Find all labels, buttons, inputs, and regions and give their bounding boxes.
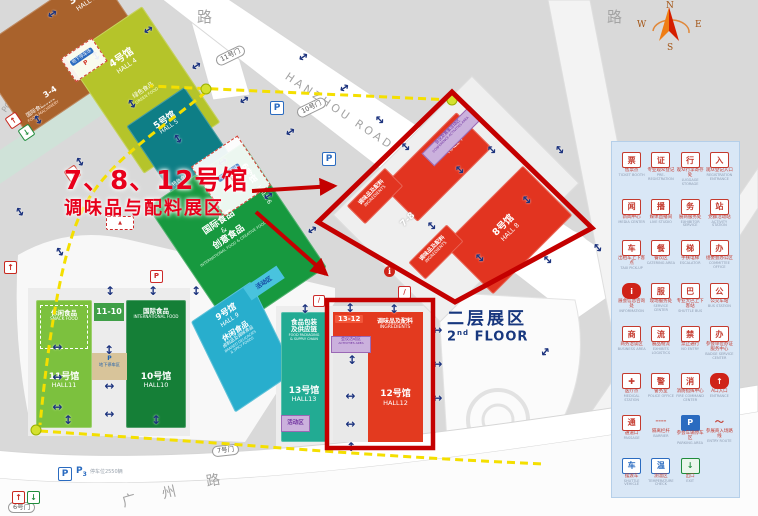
second-floor-en: 2nd FLOOR xyxy=(447,329,528,345)
escalator-point-icon-2: / xyxy=(313,295,325,307)
station-icon: 站 xyxy=(710,199,729,215)
hall12-name: 12号馆 xyxy=(368,386,423,399)
legend-label-en: MEDIA CENTER xyxy=(618,221,645,225)
hall-11: 休闲食品 SNACK FOOD 11号馆 HALL11 xyxy=(36,300,92,428)
service-center-icon: 服 xyxy=(651,283,670,299)
activity-zone-13-label: 活动区 xyxy=(287,420,304,426)
parking-capacity-note: 停车位2550辆 xyxy=(90,469,123,475)
direction-arrow-icon: ↕ xyxy=(63,414,73,426)
legend-label-en: TICKET BOOTH xyxy=(619,174,645,178)
logistics-truck-icon: 流 xyxy=(651,326,670,342)
legend-label-en: COMMITTEE OFFICE xyxy=(705,262,734,269)
hall12-en: HALL12 xyxy=(368,399,423,407)
connector-11-10: 11-10 xyxy=(94,303,124,321)
legend-label-en: POLICE OFFICE xyxy=(648,395,674,399)
legend-item: ～参展商入场路线ENTRY ROUTE xyxy=(705,415,734,446)
fire-command-icon: 消 xyxy=(681,373,700,389)
legend-label-en: INFORMATION xyxy=(619,310,644,314)
legend-item: 播媒体直播间LIVE STUDIO xyxy=(646,199,675,228)
legend-item: 入观众登记入口REGISTRATION ENTRANCE xyxy=(705,152,734,186)
service-hand-icon: 务 xyxy=(681,199,700,215)
legend-label-en: TEMPERATURE CHECK xyxy=(646,480,675,487)
direction-arrow-icon: ↕ xyxy=(105,285,115,297)
hall10-sub-en: INTERNATIONAL FOOD xyxy=(126,315,186,320)
exhibition-floor-map: { "annotation": {"line1": "7、8、12号馆", "l… xyxy=(0,0,758,516)
legend-label-en: NO ENTRY xyxy=(681,348,699,352)
annotation-line1: 7、8、12号馆 xyxy=(64,167,248,196)
route-swoosh-icon: ～ xyxy=(711,415,728,429)
second-floor-cn: 二层展区 xyxy=(447,309,528,329)
legend-item: 梯手扶电梯ESCALATOR xyxy=(676,240,705,271)
underground-parking-zone: P 地下停车区 xyxy=(92,353,127,380)
temperature-icon: 温 xyxy=(651,458,670,474)
legend-item: ↓出口EXIT xyxy=(676,458,705,487)
legend-label-en: BADGE SERVICE CENTER xyxy=(705,353,734,360)
entrance-registration-icon: 入 xyxy=(710,152,729,168)
direction-arrow-icon: ↕ xyxy=(344,419,356,429)
parking-p-icon: P xyxy=(322,152,336,166)
hall13-sub-en2: & SUPPLY CHAIN xyxy=(281,338,327,342)
underground-parking-tag: 地下停车场 xyxy=(69,47,94,67)
direction-arrow-icon: ↕ xyxy=(103,409,115,419)
no-entry-icon: 禁 xyxy=(681,326,700,342)
legend-item: 商商务洽谈区BUSINESS AREA xyxy=(617,326,646,360)
legend-label-en: EXHIBITOR SERVICE xyxy=(676,221,705,228)
second-floor-label: 二层展区 2nd FLOOR xyxy=(447,309,528,345)
direction-arrow-icon: ↕ xyxy=(431,393,443,403)
legend-label-en: LIVE STUDIO xyxy=(650,221,672,225)
legend-item: ╌╌隔离栏杆BARRIER xyxy=(646,415,675,446)
legend-label-en: SHUTTLE BUS xyxy=(678,310,702,314)
parking-p-icon: P xyxy=(58,467,72,481)
office-icon: 办 xyxy=(710,240,729,256)
direction-arrow-icon: ↕ xyxy=(191,285,201,297)
legend-item: 温测温区TEMPERATURE CHECK xyxy=(646,458,675,487)
legend-item: 票售票点TICKET BOOTH xyxy=(617,152,646,186)
shuttle-bus-icon: 巴 xyxy=(681,283,700,299)
direction-arrow-icon: ↕ xyxy=(104,344,114,356)
catering-icon: 餐 xyxy=(651,240,670,256)
direction-arrow-icon: ↕ xyxy=(389,303,399,315)
legend-label-en: EXIT xyxy=(686,480,694,484)
business-icon: 商 xyxy=(622,326,641,342)
legend-item: 证专业观众登记PRE-REGISTRATION xyxy=(646,152,675,186)
legend-label-en: PASSAGE xyxy=(624,437,640,441)
legend-label-en: FIRE COMMAND CENTER xyxy=(676,395,705,402)
legend-item: ✚医疗点MEDICAL STATION xyxy=(617,373,646,402)
compass: N W E S xyxy=(633,1,705,55)
info-point-icon: i xyxy=(384,266,395,277)
entrance-icon: ↑ xyxy=(12,491,25,504)
escalator-point-icon: / xyxy=(398,286,411,299)
direction-arrow-icon: ↕ xyxy=(148,285,158,297)
entrance-icon: ↑ xyxy=(4,261,17,274)
direction-arrow-icon: ↕ xyxy=(300,303,310,315)
legend-item: 车摆渡车SHUTTLE VEHICLE xyxy=(617,458,646,487)
legend-item: 车出租车上下客点TAXI PICK-UP xyxy=(617,240,646,271)
exit-icon: ↓ xyxy=(27,491,40,504)
legend-item: 通通道口PASSAGE xyxy=(617,415,646,446)
legend-item: 公公交车站BUS STATION xyxy=(705,283,734,314)
parking-point-icon: P xyxy=(150,270,163,283)
parking-p-mark: P xyxy=(82,59,90,67)
legend-label-en: BUSINESS AREA xyxy=(618,348,646,352)
legend-label-en: EXHIBITS LOGISTICS xyxy=(646,348,675,355)
legend-item: 服现场服务处SERVICE CENTER xyxy=(646,283,675,314)
legend-label-en: SHUTTLE VEHICLE xyxy=(617,480,646,487)
road-char-topright: 路 xyxy=(607,6,622,27)
legend-label-en: ENTRY ROUTE xyxy=(707,440,732,444)
passage-icon: 通 xyxy=(622,415,641,431)
hall11-sub-en: SNACK FOOD xyxy=(36,317,92,322)
shuttle-vehicle-icon: 车 xyxy=(622,458,641,474)
luggage-icon: 行 xyxy=(681,152,700,168)
direction-arrow-icon: ↕ xyxy=(345,302,355,314)
legend-item: 闻新闻中心MEDIA CENTER xyxy=(617,199,646,228)
barrier-icon: ╌╌ xyxy=(652,415,669,429)
camera-icon: 播 xyxy=(651,199,670,215)
hall10-en: HALL10 xyxy=(126,382,186,389)
legend-item: 流展品物流EXHIBITS LOGISTICS xyxy=(646,326,675,360)
legend-item: ↑A口入口ENTRANCE xyxy=(705,373,734,402)
legend-label-en: PRE-REGISTRATION xyxy=(646,174,675,181)
annotation-line2: 调味品与配料展区 xyxy=(64,199,248,219)
entrance-a-icon: ↑ xyxy=(710,373,729,389)
badge-service-icon: 办 xyxy=(710,326,729,342)
meeting-zone-en: ACTIVITIES AREA xyxy=(332,342,370,345)
legend-item: i展会信息咨询处INFORMATION xyxy=(617,283,646,314)
direction-arrow-icon: ↕ xyxy=(344,391,356,401)
legend-label-en: PARKING AREA xyxy=(677,442,703,446)
legend-label-en: BUS STATION xyxy=(708,305,731,309)
legend-label-en: LUGGAGE STORAGE xyxy=(676,179,705,186)
legend-label-en: TAXI PICK-UP xyxy=(620,267,642,271)
ticket-icon: 票 xyxy=(622,152,641,168)
connector-11-10-label: 11-10 xyxy=(96,307,122,316)
connector-13-12: 13-12 xyxy=(335,315,363,323)
direction-arrow-icon: ↕ xyxy=(51,342,63,352)
meeting-activity-zone: 会议活动区 ACTIVITIES AREA xyxy=(331,336,371,353)
direction-arrow-icon: ↕ xyxy=(51,372,63,382)
legend-label-en: MEDICAL STATION xyxy=(617,395,646,402)
legend-item: 站党群活动站ACTIVITY STATION xyxy=(705,199,734,228)
highlight-annotation: 7、8、12号馆 调味品与配料展区 xyxy=(64,167,248,218)
hall12-sub: 调味品及配料 xyxy=(369,316,421,325)
legend-item: 办组委会办公区COMMITTEE OFFICE xyxy=(705,240,734,271)
direction-arrow-icon: ↕ xyxy=(346,441,356,453)
legend-label-en: BARRIER xyxy=(653,435,668,439)
legend-item: 餐餐饮区CATERING AREA xyxy=(646,240,675,271)
legend-item: P参会车辆停车区PARKING AREA xyxy=(676,415,705,446)
legend-label-en: ESCALATOR xyxy=(680,262,701,266)
legend-label-en: REGISTRATION ENTRANCE xyxy=(705,174,734,181)
hall-10: 国际食品 INTERNATIONAL FOOD 10号馆 HALL10 xyxy=(126,300,186,428)
direction-arrow-icon: ↕ xyxy=(431,359,443,369)
underground-parking2-label: 地下停车区 xyxy=(92,362,127,368)
map-legend: 票售票点TICKET BOOTH证专业观众登记PRE-REGISTRATION行… xyxy=(611,141,740,498)
hall12-sub-en: INGREDIENTS xyxy=(369,325,421,330)
legend-label-en: ENTRANCE xyxy=(710,395,729,399)
media-center-icon: 闻 xyxy=(622,199,641,215)
legend-item: 办参会单位办证服务中心BADGE SERVICE CENTER xyxy=(705,326,734,360)
p3-parking-note: P3 停车位2550辆 xyxy=(76,466,123,478)
legend-label-en: ACTIVITY STATION xyxy=(705,221,734,228)
legend-item: 巴专业大巴上下客站SHUTTLE BUS xyxy=(676,283,705,314)
exit-icon: ↓ xyxy=(681,458,700,474)
bus-station-icon: 公 xyxy=(710,283,729,299)
medical-cross-icon: ✚ xyxy=(622,373,641,389)
taxi-icon: 车 xyxy=(622,240,641,256)
road-char-top: 路 xyxy=(197,6,212,27)
police-icon: 警 xyxy=(651,373,670,389)
escalator-icon: 梯 xyxy=(681,240,700,256)
legend-item: 消消防指挥中心FIRE COMMAND CENTER xyxy=(676,373,705,402)
legend-item: 行观众行李寄存处LUGGAGE STORAGE xyxy=(676,152,705,186)
direction-arrow-icon: ↕ xyxy=(103,381,115,391)
badge-icon: 证 xyxy=(651,152,670,168)
direction-arrow-icon: ↕ xyxy=(51,402,63,412)
direction-arrow-icon: ↕ xyxy=(347,354,357,366)
info-icon: i xyxy=(622,283,641,299)
legend-label-en: SERVICE CENTER xyxy=(646,305,675,312)
parking-icon: P xyxy=(681,415,700,431)
legend-item: 禁禁止通行NO ENTRY xyxy=(676,326,705,360)
direction-arrow-icon: ↕ xyxy=(431,325,443,335)
legend-item: 警警务室POLICE OFFICE xyxy=(646,373,675,402)
legend-label-en: CATERING AREA xyxy=(647,262,675,266)
hall13-en: HALL13 xyxy=(281,396,327,403)
legend-item: 务展商服务处EXHIBITOR SERVICE xyxy=(676,199,705,228)
parking-p-icon: P xyxy=(270,101,284,115)
compass-needle-icon xyxy=(633,1,705,55)
hall11-en: HALL11 xyxy=(36,382,92,389)
direction-arrow-icon: ↕ xyxy=(151,414,161,426)
activity-zone-13: 活动区 xyxy=(281,415,310,432)
